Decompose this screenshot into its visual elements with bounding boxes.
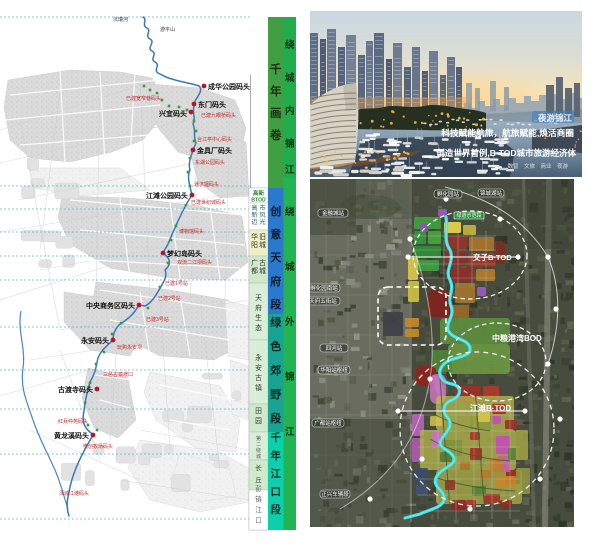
svg-text:已建世纪城码头: 已建世纪城码头 [191, 199, 226, 206]
svg-text:沉瑞河: 沉瑞河 [113, 16, 128, 23]
svg-text:江滩公园码头: 江滩公园码头 [146, 191, 188, 200]
svg-text:梦幻岛码头: 梦幻岛码头 [167, 249, 202, 258]
svg-text:城: 城 [285, 261, 295, 273]
svg-text:孵化园站: 孵化园站 [437, 190, 460, 198]
svg-text:已建九眼桥码头: 已建九眼桥码头 [201, 112, 236, 119]
svg-text:双流二江坝码头: 双流二江坝码头 [177, 259, 212, 266]
svg-text:绕: 绕 [285, 39, 295, 51]
svg-text:绕: 绕 [285, 206, 295, 218]
svg-text:须城江滩码头: 须城江滩码头 [59, 490, 89, 497]
svg-text:夜游锦江: 夜游锦江 [537, 113, 573, 123]
svg-text:锦: 锦 [285, 371, 295, 383]
svg-text:已建3号站: 已建3号站 [146, 316, 169, 323]
svg-text:城: 城 [256, 453, 261, 460]
svg-text:外: 外 [284, 316, 295, 328]
svg-text:江: 江 [255, 506, 262, 514]
svg-text:阳: 阳 [251, 240, 258, 249]
svg-text:画: 画 [270, 107, 282, 120]
svg-text:江: 江 [285, 164, 295, 176]
svg-text:创造世界首例,B-TOD城市旅游经济体: 创造世界首例,B-TOD城市旅游经济体 [435, 148, 576, 158]
svg-text:千: 千 [270, 431, 281, 444]
svg-text:东湖公园码头: 东湖公园码头 [195, 159, 225, 166]
svg-text:口: 口 [255, 517, 262, 525]
svg-text:江: 江 [285, 426, 295, 438]
svg-text:慢创牧场码头: 慢创牧场码头 [83, 443, 113, 450]
svg-text:四河站: 四河站 [326, 344, 343, 352]
svg-text:生: 生 [255, 313, 262, 322]
svg-text:郊: 郊 [270, 363, 281, 377]
svg-text:第: 第 [256, 435, 261, 442]
svg-text:长: 长 [255, 463, 262, 472]
svg-text:千: 千 [270, 62, 282, 76]
svg-text:城: 城 [259, 267, 266, 275]
svg-text:金融城站: 金融城站 [322, 209, 345, 217]
svg-text:府: 府 [270, 274, 281, 288]
svg-text:市: 市 [259, 204, 265, 212]
svg-text:绿: 绿 [270, 315, 282, 329]
svg-text:都: 都 [251, 267, 258, 275]
svg-text:锦: 锦 [285, 138, 295, 150]
svg-text:已建1号站: 已建1号站 [165, 280, 188, 287]
svg-text:古: 古 [255, 373, 262, 382]
svg-text:卷: 卷 [269, 128, 282, 142]
svg-text:新: 新 [251, 211, 257, 219]
svg-text:黄龙溪码头: 黄龙溪码头 [54, 431, 89, 440]
svg-text:府: 府 [255, 303, 262, 312]
svg-text:迈: 迈 [251, 218, 257, 226]
svg-text:段: 段 [270, 411, 281, 425]
svg-text:中粮港湾BOD: 中粮港湾BOD [492, 333, 542, 343]
svg-text:孵化园南站: 孵化园南站 [310, 284, 338, 292]
svg-text:锦城湖站: 锦城湖站 [480, 189, 503, 197]
svg-text:永安码头: 永安码头 [80, 336, 109, 345]
svg-text:通济堰码头: 通济堰码头 [194, 181, 219, 188]
svg-text:田: 田 [255, 407, 262, 415]
svg-text:旧: 旧 [259, 233, 266, 241]
svg-text:玩购永安坝: 玩购永安坝 [117, 344, 142, 351]
svg-text:古渡寺码头: 古渡寺码头 [58, 385, 93, 394]
svg-text:天府五街站: 天府五街站 [310, 297, 337, 305]
svg-text:天: 天 [270, 251, 282, 264]
svg-text:中央商务区码头: 中央商务区码头 [86, 301, 135, 310]
svg-text:段: 段 [270, 297, 281, 311]
svg-text:口: 口 [270, 486, 281, 498]
svg-text:已建2号站: 已建2号站 [158, 295, 181, 302]
svg-text:广都站枢纽: 广都站枢纽 [314, 419, 342, 427]
svg-text:风: 风 [259, 212, 265, 219]
svg-text:正兴车辆段: 正兴车辆段 [321, 490, 349, 498]
svg-text:段: 段 [270, 503, 281, 516]
svg-text:永: 永 [255, 353, 262, 362]
svg-text:江滩B·TOD: 江滩B·TOD [470, 403, 511, 413]
svg-text:金具厂码头: 金具厂码头 [196, 146, 232, 155]
svg-text:安: 安 [255, 363, 262, 372]
svg-text:园: 园 [255, 417, 262, 425]
svg-text:镇: 镇 [255, 383, 262, 392]
svg-text:内: 内 [285, 105, 295, 117]
svg-text:华阳站枢纽: 华阳站枢纽 [320, 366, 348, 374]
svg-text:绿道示范段: 绿道示范段 [456, 212, 481, 219]
svg-text:城: 城 [259, 241, 266, 249]
svg-text:意: 意 [270, 227, 281, 241]
svg-text:红兵仲苑码头: 红兵仲苑码头 [58, 418, 88, 425]
svg-text:态: 态 [255, 323, 262, 332]
svg-text:科技赋能航旅，航旅赋能,焕活商圈: 科技赋能航旅，航旅赋能,焕活商圈 [441, 127, 574, 138]
svg-text:古: 古 [259, 258, 266, 267]
svg-text:广: 广 [251, 258, 258, 267]
svg-text:合江亭中心码头: 合江亭中心码头 [197, 136, 232, 143]
svg-text:年: 年 [270, 449, 281, 462]
svg-text:镇: 镇 [255, 495, 262, 504]
svg-text:创: 创 [269, 204, 281, 218]
svg-text:天: 天 [255, 294, 262, 302]
svg-text:野: 野 [270, 388, 281, 401]
svg-text:江: 江 [270, 467, 281, 480]
svg-text:数智 文旅 商业 夜游: 数智 文旅 商业 夜游 [507, 162, 568, 170]
svg-text:年: 年 [270, 84, 282, 98]
svg-text:绕: 绕 [256, 447, 261, 454]
svg-text:已建宽窄巷码头: 已建宽窄巷码头 [126, 95, 161, 102]
svg-text:游平山: 游平山 [160, 26, 175, 33]
svg-text:华: 华 [251, 232, 258, 241]
svg-text:光: 光 [259, 218, 265, 226]
svg-text:城: 城 [285, 72, 295, 84]
svg-text:博物馆码头: 博物馆码头 [179, 228, 204, 235]
svg-text:东门码头: 东门码头 [198, 100, 226, 109]
svg-text:丘: 丘 [255, 476, 262, 484]
svg-text:色: 色 [270, 339, 281, 353]
svg-text:高新: 高新 [253, 189, 265, 197]
svg-text:高: 高 [251, 204, 257, 212]
svg-text:兴宜码头: 兴宜码头 [159, 109, 187, 118]
svg-text:彭: 彭 [255, 484, 262, 493]
svg-text:成华公园码头: 成华公园码头 [208, 82, 250, 91]
svg-text:交子B·TOD: 交子B·TOD [473, 252, 512, 262]
svg-text:BTOD: BTOD [251, 198, 266, 204]
svg-text:三邑古镇渡口: 三邑古镇渡口 [103, 371, 133, 378]
